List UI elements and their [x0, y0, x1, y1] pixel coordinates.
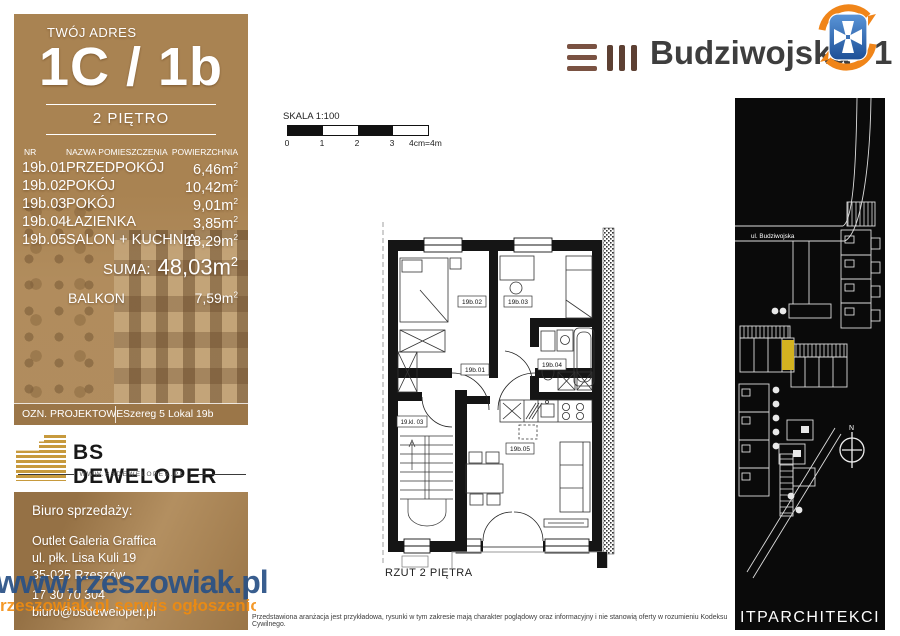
floor-plan: 19b.02 19b.03 19b.01 19b.04 19b.05 19.kl… — [375, 218, 620, 568]
plan-caption: RZUT 2 PIĘTRA — [385, 567, 473, 579]
disclaimer-text: Przedstawiona aranżacja jest przykładowa… — [252, 614, 732, 628]
office-line: Outlet Galeria Graffica — [32, 534, 248, 548]
highlighted-unit — [782, 340, 794, 370]
office-title: Biuro sprzedaży: — [32, 503, 248, 518]
room-label: 19b.03 — [508, 299, 528, 306]
kitchen-counter — [500, 400, 592, 439]
scale-label: SKALA 1:100 — [283, 111, 340, 122]
suma-value: 48,03m2 — [158, 254, 238, 280]
developer-name: BS DEWELOPER — [73, 441, 248, 489]
apartment-info-panel: TWÓJ ADRES 1C / 1b 2 PIĘTRO NR NAZWA POM… — [14, 14, 248, 425]
unit-number: 1C / 1b — [14, 36, 248, 98]
room-area: 18,29m2 — [185, 232, 238, 250]
floor-label-wrap: 2 PIĘTRO — [46, 104, 216, 135]
rule-left — [18, 474, 74, 475]
room-nr: 19b.05 — [22, 232, 66, 248]
rule-right — [191, 474, 247, 475]
room-area: 3,85m2 — [193, 214, 238, 232]
ozn-label: OZN. PROJEKTOWE — [22, 408, 123, 420]
room-label: 19b.05 — [510, 446, 530, 453]
site-map-panel: ul. Budziwojska N ITPARCHITEKCI — [735, 98, 885, 630]
project-designation-bar: OZN. PROJEKTOWE Szereg 5 Lokal 19b — [14, 403, 248, 425]
scale-end-label: 4cm=4m — [409, 138, 442, 148]
room-name: POKÓJ — [66, 178, 115, 194]
balcony — [452, 552, 607, 568]
compass-n-label: N — [849, 425, 854, 432]
room-nr: 19b.04 — [22, 214, 66, 230]
furniture-living — [466, 442, 590, 527]
room-nr: 19b.03 — [22, 196, 66, 212]
suma-row: SUMA: 48,03m2 — [103, 254, 238, 280]
street-label: ul. Budziwojska — [751, 233, 795, 240]
watermark-orange: rzeszowiak.pl serwis ogłoszeniowy — [0, 596, 256, 616]
architect-studio-name: ITPARCHITEKCI — [740, 609, 880, 626]
ozn-divider — [115, 406, 116, 423]
furniture-room3 — [500, 256, 592, 318]
table-row: 19b.03 POKÓJ 9,01m2 — [14, 196, 248, 214]
scale-tick: 2 — [352, 138, 362, 148]
room-label: 19.kl. 03 — [401, 420, 424, 426]
room-area: 10,42m2 — [185, 178, 238, 196]
furniture-bedroom — [400, 258, 461, 352]
room-name: POKÓJ — [66, 196, 115, 212]
city-emblem-icon — [816, 4, 880, 72]
col-area: POWIERZCHNIA — [172, 147, 238, 157]
room-nr: 19b.02 — [22, 178, 66, 194]
neighbour-wall-hatch — [603, 228, 614, 554]
ozn-value: Szereg 5 Lokal 19b — [123, 408, 213, 420]
scale-tick: 0 — [282, 138, 292, 148]
developer-website-row: WWW.BSDEWELOPER.PL — [18, 471, 246, 478]
developer-website: WWW.BSDEWELOPER.PL — [74, 471, 191, 478]
room-label: 19b.04 — [542, 362, 562, 369]
table-row: 19b.05 SALON + KUCHNIA 18,29m2 — [14, 232, 248, 250]
suma-label: SUMA: — [103, 261, 151, 278]
room-label: 19b.01 — [465, 367, 485, 374]
balkon-label: BALKON — [68, 290, 125, 306]
col-name: NAZWA POMIESZCZENIA — [66, 147, 168, 157]
site-map: ul. Budziwojska N ITPARCHITEKCI — [735, 98, 885, 630]
table-row: 19b.04 ŁAZIENKA 3,85m2 — [14, 214, 248, 232]
room-label: 19b.02 — [462, 299, 482, 306]
flyer-page: TWÓJ ADRES 1C / 1b 2 PIĘTRO NR NAZWA POM… — [0, 0, 900, 636]
developer-logo-block: BS DEWELOPER WWW.BSDEWELOPER.PL — [14, 433, 248, 489]
floor-label: 2 PIĘTRO — [93, 110, 169, 127]
room-area: 9,01m2 — [193, 196, 238, 214]
table-row: 19b.01 PRZEDPOKÓJ 6,46m2 — [14, 160, 248, 178]
office-line: ul. płk. Lisa Kuli 19 — [32, 551, 248, 565]
scale-bar — [287, 125, 429, 136]
room-name: SALON + KUCHNIA — [66, 232, 197, 248]
room-name: PRZEDPOKÓJ — [66, 160, 164, 176]
scale-tick: 1 — [317, 138, 327, 148]
room-area: 6,46m2 — [193, 160, 238, 178]
room-name: ŁAZIENKA — [66, 214, 136, 230]
brand-bars-icon — [567, 43, 647, 73]
scale-tick: 3 — [387, 138, 397, 148]
table-row: 19b.02 POKÓJ 10,42m2 — [14, 178, 248, 196]
col-nr: NR — [24, 147, 36, 157]
balkon-value: 7,59m2 — [195, 290, 238, 306]
room-nr: 19b.01 — [22, 160, 66, 176]
